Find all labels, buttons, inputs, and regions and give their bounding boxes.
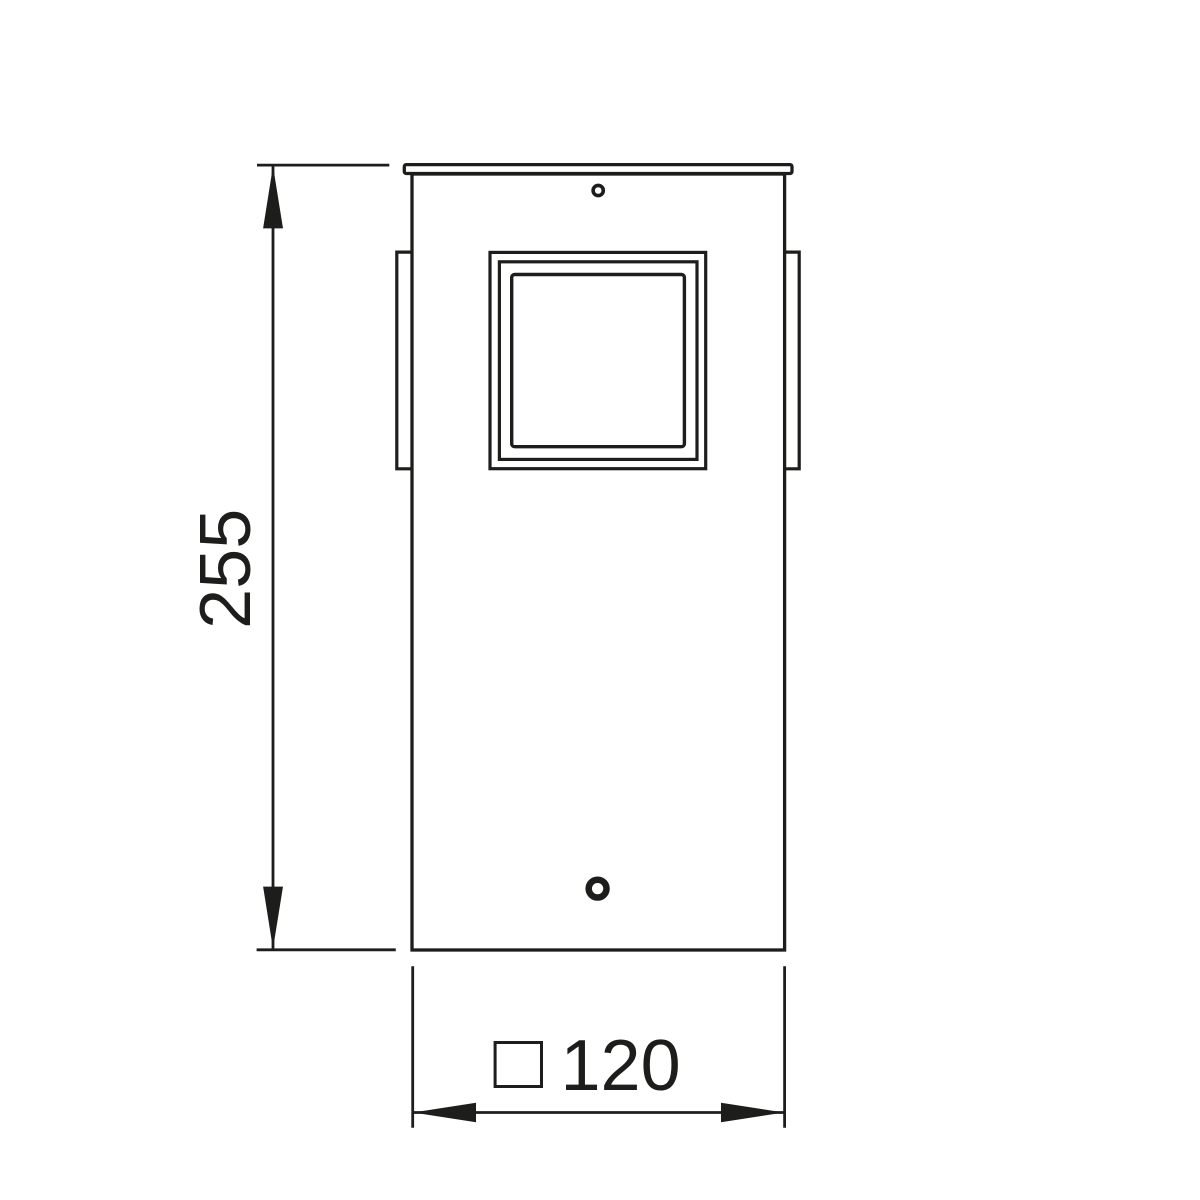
svg-text:255: 255 bbox=[186, 509, 266, 629]
svg-text:120: 120 bbox=[561, 1026, 681, 1106]
